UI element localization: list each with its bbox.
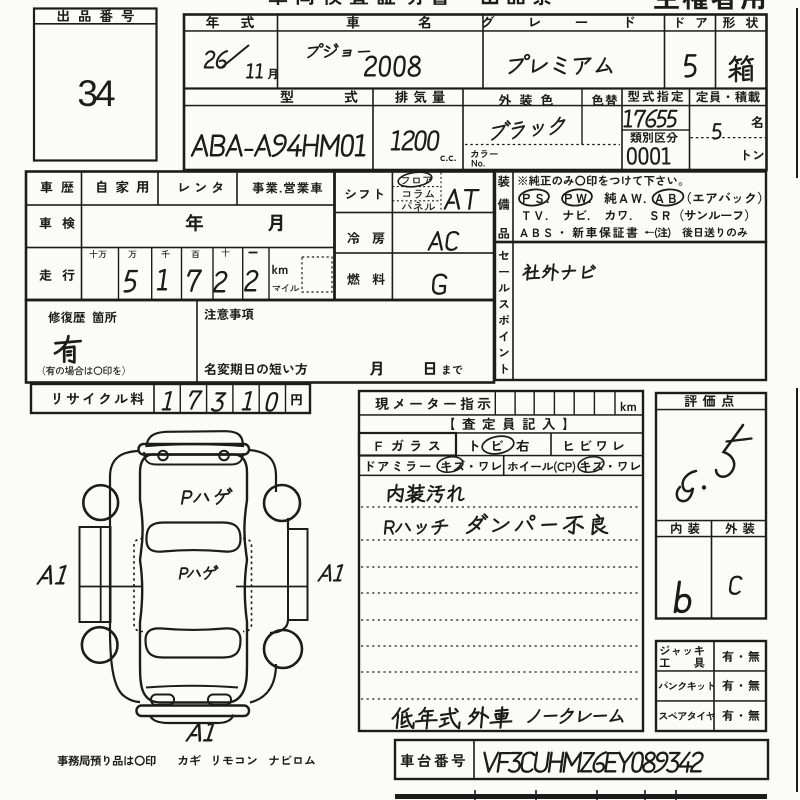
svg-text:34: 34 [77, 73, 115, 114]
